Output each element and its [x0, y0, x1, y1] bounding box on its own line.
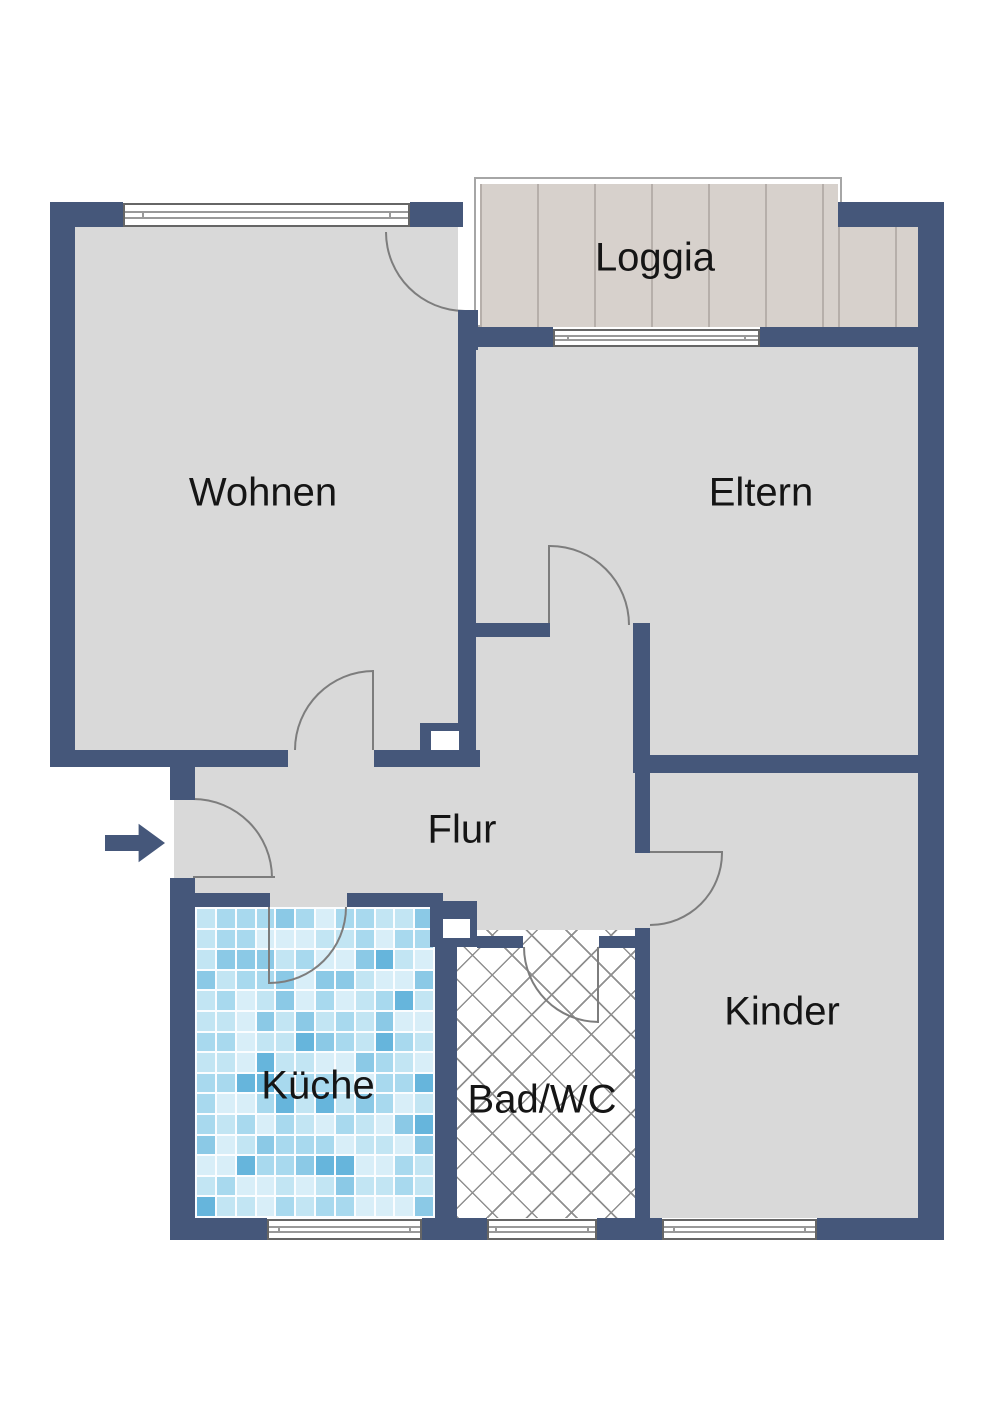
kitchen-tile: [376, 1074, 394, 1093]
kitchen-tile: [217, 1033, 235, 1052]
kitchen-tile: [217, 1177, 235, 1196]
kitchen-tile: [197, 1156, 215, 1175]
kitchen-tile: [197, 1012, 215, 1031]
kitchen-tile: [415, 950, 433, 969]
wall-kueche-left: [170, 907, 195, 1240]
kitchen-tile: [276, 1012, 294, 1031]
kitchen-tile: [356, 991, 374, 1010]
wall-top-left: [50, 202, 123, 227]
kitchen-tile: [395, 1053, 413, 1072]
kitchen-tile: [395, 1156, 413, 1175]
kitchen-tile: [395, 1115, 413, 1134]
loggia-wood-floor-right: [838, 225, 918, 327]
wall-bottom-d: [817, 1218, 944, 1240]
window-kueche: [267, 1219, 422, 1240]
kitchen-tile: [415, 1156, 433, 1175]
wohnen-door-leaf: [372, 670, 374, 750]
kitchen-tile: [237, 950, 255, 969]
kitchen-tile: [237, 1177, 255, 1196]
kitchen-tile: [336, 971, 354, 990]
kitchen-tile: [336, 1136, 354, 1155]
kitchen-tile: [217, 1156, 235, 1175]
kitchen-tile: [415, 1012, 433, 1031]
kitchen-tile: [217, 930, 235, 949]
kitchen-tile: [296, 991, 314, 1010]
kitchen-tile: [376, 950, 394, 969]
kitchen-tile: [197, 1136, 215, 1155]
kitchen-tile: [257, 1115, 275, 1134]
kitchen-tile: [356, 1177, 374, 1196]
wall-bad-top-left: [477, 936, 523, 948]
kitchen-tile: [197, 1115, 215, 1134]
kitchen-tile: [376, 1197, 394, 1216]
window-eltern-loggia: [553, 329, 760, 347]
wall-top-mid: [410, 202, 463, 227]
kitchen-tile: [356, 1156, 374, 1175]
kitchen-tile: [395, 1033, 413, 1052]
kitchen-tile: [336, 950, 354, 969]
kitchen-tile: [237, 1156, 255, 1175]
entrance-recess-floor: [174, 800, 195, 878]
wall-wohnen-eltern-divider: [458, 347, 476, 767]
kitchen-tile: [316, 1156, 334, 1175]
kitchen-tile: [356, 1136, 374, 1155]
kitchen-tile: [376, 909, 394, 928]
kitchen-tile: [217, 1115, 235, 1134]
kitchen-tile: [237, 1136, 255, 1155]
kitchen-tile: [415, 1197, 433, 1216]
kitchen-tile: [356, 930, 374, 949]
kitchen-tile: [257, 1033, 275, 1052]
kitchen-tile: [376, 1033, 394, 1052]
kitchen-tile: [276, 1136, 294, 1155]
kitchen-tile: [415, 991, 433, 1010]
kitchen-tile: [197, 1053, 215, 1072]
kitchen-tile: [197, 1197, 215, 1216]
kitchen-tile: [276, 1033, 294, 1052]
wall-kueche-bad-divider: [435, 947, 457, 1218]
kitchen-tile: [237, 1012, 255, 1031]
kitchen-tile: [276, 1177, 294, 1196]
wall-entry-upper: [170, 767, 195, 800]
kitchen-tile: [336, 1012, 354, 1031]
kitchen-tile: [237, 991, 255, 1010]
kitchen-tile: [237, 1033, 255, 1052]
wall-kinder-left-upper: [635, 772, 650, 853]
kinder-door-leaf: [650, 851, 723, 853]
kitchen-tile: [316, 971, 334, 990]
kitchen-tile: [395, 930, 413, 949]
kitchen-tile: [197, 1094, 215, 1113]
bad-door-leaf: [597, 947, 599, 1023]
kitchen-tile: [237, 1094, 255, 1113]
kitchen-tile: [395, 1094, 413, 1113]
window-tick: [804, 1227, 806, 1233]
kitchen-tile: [316, 1033, 334, 1052]
kitchen-tile: [376, 1136, 394, 1155]
kitchen-tile: [257, 1177, 275, 1196]
window-tick: [409, 1227, 411, 1233]
kitchen-tile: [296, 1197, 314, 1216]
kitchen-tile: [257, 1197, 275, 1216]
kitchen-tile: [217, 1136, 235, 1155]
wall-kueche-top-left: [195, 893, 270, 907]
kitchen-tile: [395, 1012, 413, 1031]
eltern-door-leaf: [548, 545, 550, 625]
kitchen-tile: [415, 1136, 433, 1155]
kitchen-tile: [197, 991, 215, 1010]
kitchen-tile: [356, 1197, 374, 1216]
kitchen-tile: [197, 909, 215, 928]
entrance-arrow-icon: [105, 823, 165, 863]
room-label-kueche: Küche: [261, 1064, 374, 1109]
kitchen-tile: [356, 971, 374, 990]
room-label-wohnen: Wohnen: [189, 471, 337, 516]
kitchen-tile: [395, 971, 413, 990]
window-wohnen: [123, 203, 410, 227]
kitchen-tile: [237, 1053, 255, 1072]
kueche-door-leaf: [268, 907, 270, 984]
kitchen-tile: [217, 1094, 235, 1113]
kitchen-tile: [197, 1074, 215, 1093]
kitchen-tile: [395, 1177, 413, 1196]
kitchen-tile: [336, 1177, 354, 1196]
wall-right: [918, 202, 944, 1240]
kitchen-tile: [217, 971, 235, 990]
kitchen-tile: [376, 1115, 394, 1134]
shaft-upper-opening: [431, 731, 459, 750]
kitchen-tile: [217, 909, 235, 928]
kitchen-tile: [415, 971, 433, 990]
kitchen-tile: [296, 1156, 314, 1175]
kitchen-tile: [356, 1115, 374, 1134]
kitchen-tile: [217, 1074, 235, 1093]
kitchen-tile: [336, 1115, 354, 1134]
kitchen-tile: [237, 1197, 255, 1216]
kitchen-tile: [217, 1053, 235, 1072]
room-label-kinder: Kinder: [724, 990, 840, 1035]
wall-wohnen-bottom-left: [50, 750, 288, 767]
kitchen-tile: [197, 950, 215, 969]
kitchen-tile: [257, 1136, 275, 1155]
kitchen-tile: [217, 1012, 235, 1031]
window-tick: [673, 1227, 675, 1233]
kitchen-tile: [276, 991, 294, 1010]
kitchen-tile: [237, 930, 255, 949]
kitchen-tile: [356, 909, 374, 928]
kitchen-tile: [415, 1115, 433, 1134]
wall-bottom-b: [422, 1218, 487, 1240]
kitchen-tile: [296, 1177, 314, 1196]
kitchen-tile: [415, 1094, 433, 1113]
kitchen-tile: [217, 991, 235, 1010]
room-label-bad: Bad/WC: [468, 1078, 617, 1123]
kitchen-tile: [296, 1115, 314, 1134]
floor-plan: Loggia Wohnen Eltern Flur Küche Bad/WC K…: [0, 0, 1000, 1415]
kitchen-tile: [316, 1136, 334, 1155]
wall-bottom-a: [170, 1218, 267, 1240]
kitchen-tile: [276, 1115, 294, 1134]
window-tick: [389, 212, 391, 219]
kitchen-tile: [257, 991, 275, 1010]
kitchen-tile: [395, 950, 413, 969]
room-label-flur: Flur: [428, 808, 497, 853]
kitchen-tile: [217, 950, 235, 969]
window-tick: [142, 212, 144, 219]
kitchen-tile: [336, 991, 354, 1010]
kitchen-tile: [336, 1156, 354, 1175]
window-tick: [567, 336, 569, 341]
kitchen-tile: [395, 1136, 413, 1155]
wall-eltern-bottom: [633, 755, 918, 773]
kitchen-tile: [316, 991, 334, 1010]
kitchen-tile: [237, 1115, 255, 1134]
kitchen-tile: [296, 1136, 314, 1155]
window-kinder: [662, 1219, 817, 1240]
window-tick: [587, 1227, 589, 1233]
window-bad: [487, 1219, 597, 1240]
kitchen-tile: [257, 1156, 275, 1175]
kitchen-tile: [395, 1197, 413, 1216]
wall-bottom-c: [597, 1218, 662, 1240]
kitchen-tile: [376, 1156, 394, 1175]
kitchen-tile: [376, 971, 394, 990]
kitchen-tile: [237, 971, 255, 990]
kinder-door-gap-floor: [635, 853, 650, 928]
kitchen-tile: [316, 1197, 334, 1216]
kitchen-tile: [276, 1197, 294, 1216]
kitchen-tile: [316, 1012, 334, 1031]
kitchen-tile: [415, 1053, 433, 1072]
kitchen-tile: [336, 1197, 354, 1216]
wall-entry-lower: [170, 878, 195, 908]
kitchen-tile: [395, 1074, 413, 1093]
window-tick: [744, 336, 746, 341]
wall-kueche-top-right: [347, 893, 443, 907]
kitchen-tile: [296, 1012, 314, 1031]
entrance-door-leaf: [193, 876, 275, 878]
wall-flur-eltern-stub: [458, 623, 550, 637]
kitchen-tile: [376, 930, 394, 949]
kitchen-tile: [197, 930, 215, 949]
kitchen-tile: [197, 1177, 215, 1196]
kitchen-tile: [356, 1033, 374, 1052]
kitchen-tile: [257, 1012, 275, 1031]
kitchen-tile: [237, 909, 255, 928]
window-tick: [278, 1227, 280, 1233]
kitchen-tile: [376, 1177, 394, 1196]
kitchen-tile: [197, 971, 215, 990]
kitchen-tile: [415, 1074, 433, 1093]
kitchen-tile: [356, 1012, 374, 1031]
wall-eltern-top-right: [760, 327, 918, 347]
kitchen-tile: [415, 1033, 433, 1052]
kitchen-tile: [276, 1156, 294, 1175]
kitchen-tile: [356, 950, 374, 969]
room-label-eltern: Eltern: [709, 471, 814, 516]
kitchen-tile: [376, 1053, 394, 1072]
kitchen-tile: [395, 909, 413, 928]
kitchen-tile: [316, 1115, 334, 1134]
kitchen-tile: [316, 1177, 334, 1196]
wall-eltern-lower-left: [633, 623, 650, 760]
window-tick: [495, 1227, 497, 1233]
kitchen-tile: [395, 991, 413, 1010]
room-label-loggia: Loggia: [595, 236, 715, 281]
kitchen-tile: [217, 1197, 235, 1216]
shaft-lower-opening: [443, 919, 470, 938]
wall-kinder-left-lower: [635, 928, 650, 1218]
kitchen-tile: [376, 1012, 394, 1031]
kitchen-tile: [376, 1094, 394, 1113]
wall-left: [50, 202, 75, 767]
wall-eltern-top-left: [458, 327, 553, 347]
kitchen-tile: [197, 1033, 215, 1052]
kitchen-tile: [237, 1074, 255, 1093]
kitchen-tile: [376, 991, 394, 1010]
kitchen-tile: [296, 1033, 314, 1052]
kitchen-tile: [336, 1033, 354, 1052]
kitchen-tile: [415, 1177, 433, 1196]
